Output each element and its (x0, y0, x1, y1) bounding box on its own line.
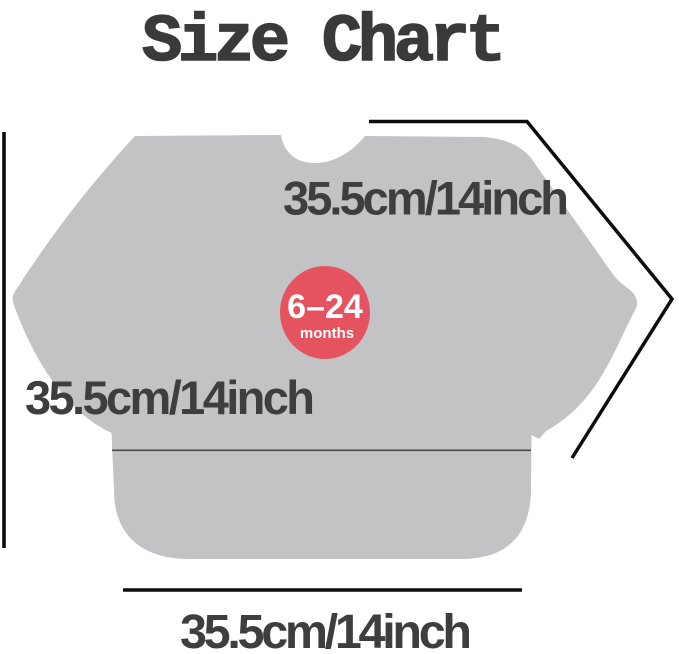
svg-text:35.5cm/14inch: 35.5cm/14inch (180, 605, 472, 654)
svg-text:Size Chart: Size Chart (142, 5, 506, 81)
svg-text:months: months (300, 325, 354, 342)
svg-text:35.5cm/14inch: 35.5cm/14inch (283, 172, 569, 225)
svg-text:6–24: 6–24 (287, 288, 363, 326)
svg-text:35.5cm/14inch: 35.5cm/14inch (25, 371, 315, 424)
